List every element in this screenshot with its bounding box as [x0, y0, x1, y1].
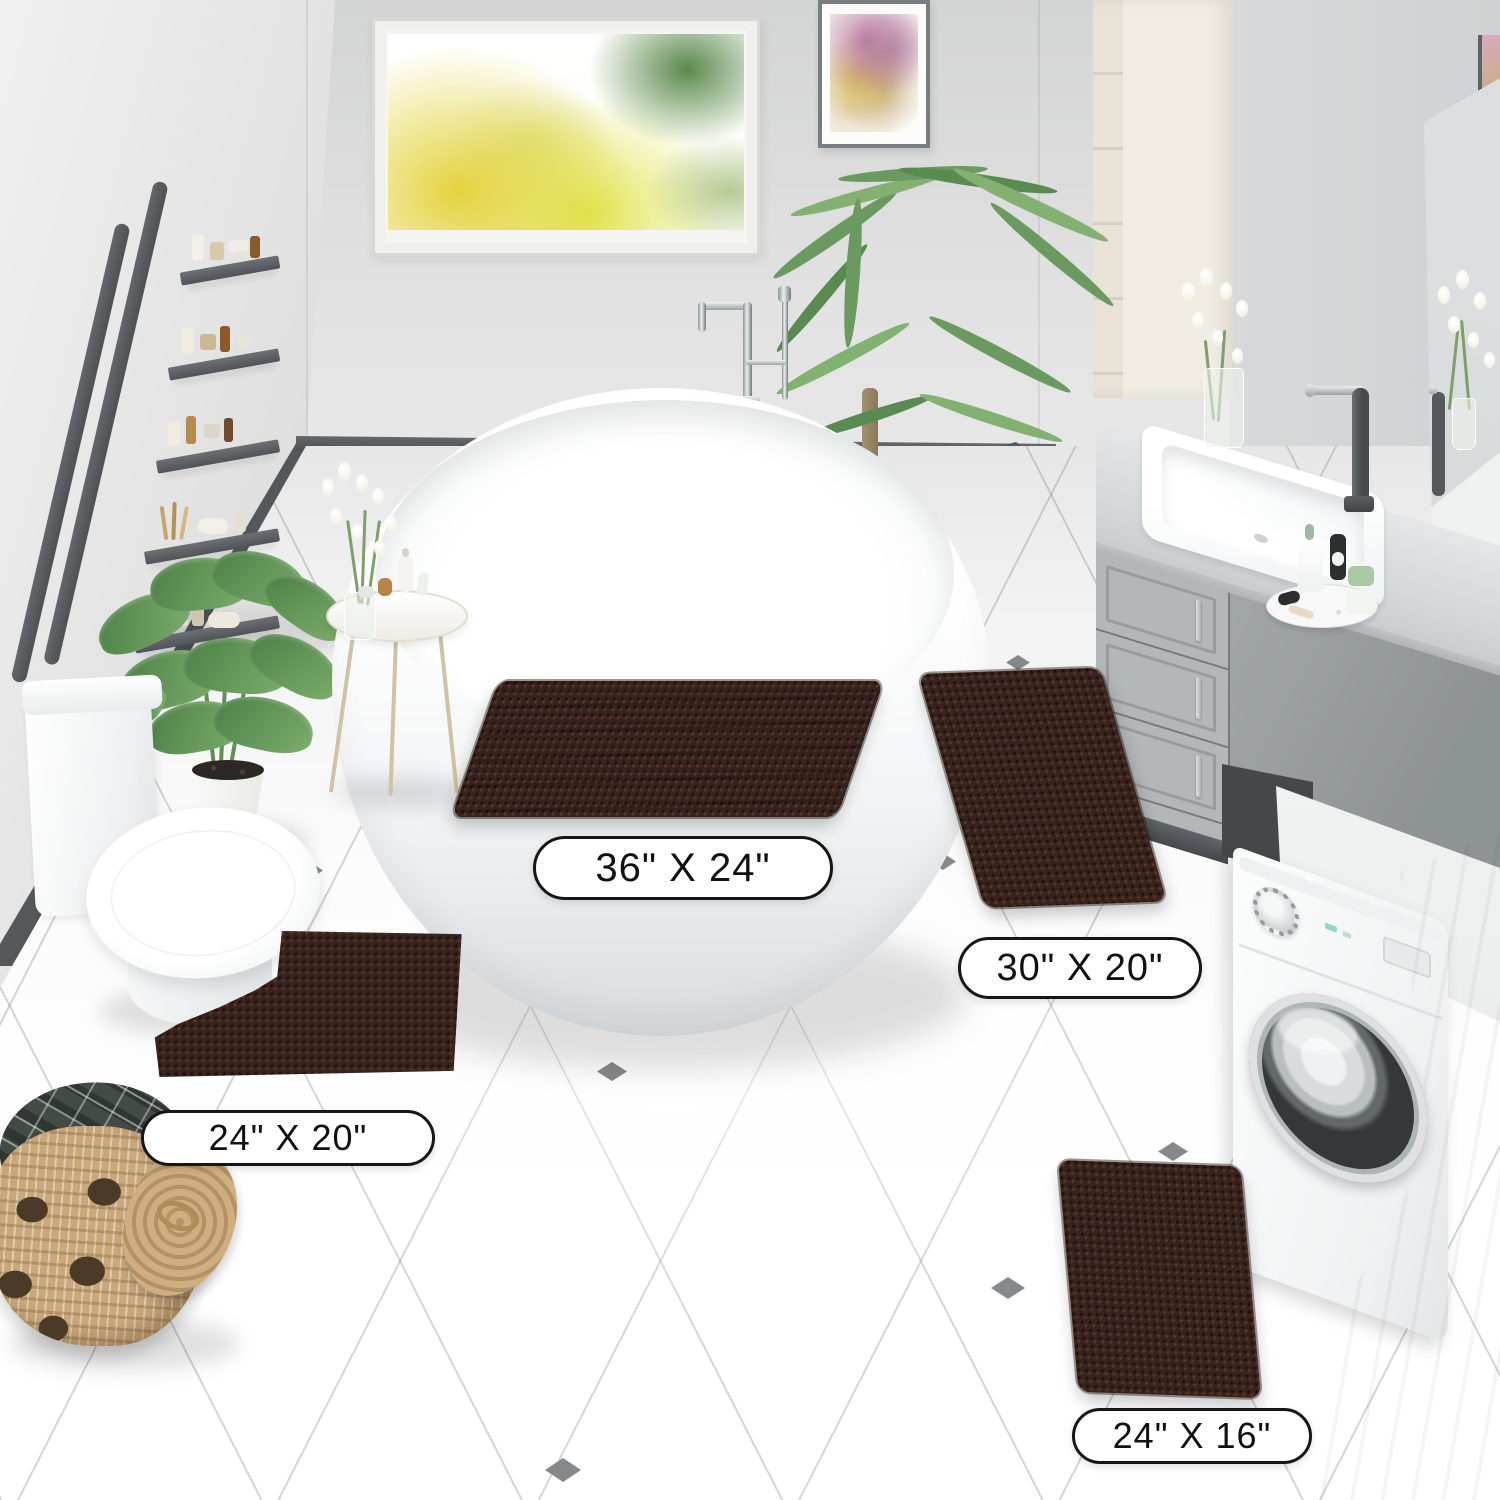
white-flower [1232, 348, 1243, 364]
white-flower [1200, 268, 1213, 287]
mirror-reflection-flower [1474, 292, 1486, 310]
mirror-reflection-flower [1448, 316, 1460, 333]
white-flower [322, 478, 334, 496]
wall-art-watercolor [830, 14, 918, 132]
vanity-faucet-tip [1305, 384, 1315, 397]
cosmetic-jar [378, 578, 392, 596]
side-table-shadow [335, 778, 470, 806]
toiletry-bottle [186, 416, 196, 444]
tub-faucet-spout-tip [698, 302, 706, 332]
toiletry-bottle [182, 328, 194, 354]
makeup-brush [171, 502, 176, 540]
bath-rug-24x16 [1058, 1160, 1261, 1398]
toiletry-jar [238, 334, 252, 348]
white-flower [1236, 300, 1248, 317]
flower-vase [344, 592, 376, 640]
size-label-30x20: 30" X 20" [958, 937, 1202, 999]
lotion-pump [1305, 524, 1314, 540]
vanity-faucet-base [1344, 496, 1374, 512]
tub-faucet-riser [743, 302, 752, 400]
cabinet-shelf-lines [1093, 0, 1123, 398]
mirror-reflection-faucet [1432, 392, 1445, 496]
white-flower [1182, 282, 1195, 301]
size-label-24x16: 24" X 16" [1072, 1408, 1312, 1464]
cosmetic-jar [358, 586, 374, 598]
white-flower [1220, 282, 1232, 300]
toiletry-bottle [250, 236, 260, 258]
white-flower [374, 540, 385, 556]
mirror-reflection-flower [1484, 352, 1495, 368]
window [372, 18, 760, 256]
size-label-24x20: 24" X 20" [141, 1110, 435, 1166]
makeup-brush [160, 506, 169, 540]
toiletry-bottle [192, 234, 204, 260]
mirror-reflection-flower [1438, 286, 1450, 304]
window-view-trees [388, 34, 744, 230]
hand-shower-head [778, 286, 791, 302]
hand-shower-wand [782, 296, 788, 400]
washer-indicator-light [1343, 931, 1351, 939]
white-flower [1192, 312, 1204, 329]
cosmetic-pump [402, 548, 409, 557]
white-flower [356, 474, 368, 492]
green-jar [1348, 566, 1374, 586]
white-flower [352, 524, 363, 540]
white-flower [372, 488, 384, 505]
white-jar [1346, 590, 1376, 614]
mirror-reflection-flower [1456, 270, 1469, 289]
vanity-faucet [1308, 378, 1374, 514]
toiletry-jar [200, 334, 216, 350]
plant-pot-soil [192, 760, 264, 780]
white-flower [386, 516, 397, 532]
vanity-faucet-body [1352, 388, 1369, 500]
toiletry-bottle [168, 422, 180, 446]
vanity-drawer-handle [1196, 677, 1201, 721]
bath-rug-36x24 [451, 681, 884, 817]
size-label-36x24: 36" X 24" [533, 836, 833, 900]
vanity-drawer-handle [1196, 755, 1201, 799]
rolled-towel [227, 239, 248, 254]
cosmetic-bottle [398, 556, 413, 592]
lotion-bottle [1298, 538, 1323, 592]
white-flower [330, 508, 342, 525]
makeup-brush [179, 506, 189, 540]
bottle-label [1332, 552, 1344, 566]
rolled-towel [198, 518, 228, 534]
wall-corner-right [1038, 0, 1040, 450]
washer-dial [1253, 880, 1299, 943]
toiletry-jar [210, 242, 224, 260]
toiletry-jar [234, 512, 246, 532]
washer-indicator-light [1325, 922, 1337, 932]
white-flower [338, 462, 351, 481]
rolled-towel [208, 612, 240, 628]
mirror-reflection-flower [1468, 332, 1479, 348]
white-flower [1212, 330, 1223, 346]
tub-faucet-crossbar [746, 360, 786, 365]
counter-flower-vase [1204, 368, 1244, 448]
toiletry-bottle [220, 326, 230, 352]
bathroom-product-photo: 36" X 24" 30" X 20" 24" X 20" 24" X 16" [0, 0, 1500, 1500]
wall-art-frame [818, 0, 930, 148]
vanity-drawer-handle [1196, 599, 1201, 643]
mirror-reflection-vase [1452, 398, 1476, 450]
toiletry-bottle [224, 418, 233, 442]
toiletry-jar [204, 424, 220, 438]
